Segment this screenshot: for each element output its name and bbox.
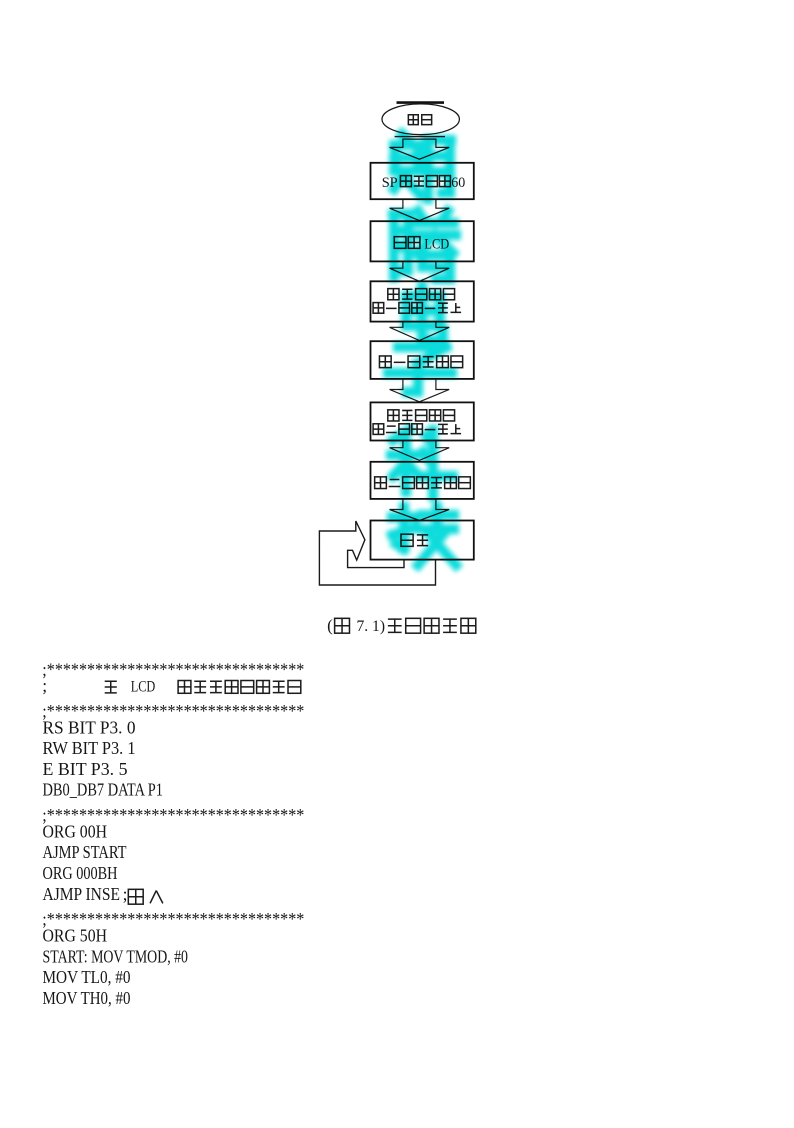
svg-text:START: MOV TMOD, #0: START: MOV TMOD, #0: [43, 946, 189, 966]
svg-text:LCD: LCD: [131, 679, 156, 696]
svg-text:7. 1): 7. 1): [357, 618, 386, 635]
svg-text:;: ;: [42, 676, 47, 696]
svg-text:MOV TH0, #0: MOV TH0, #0: [43, 988, 131, 1008]
svg-text:AJMP START: AJMP START: [43, 842, 127, 862]
svg-text:ORG 000BH: ORG 000BH: [43, 863, 118, 883]
svg-text:;: ;: [123, 884, 128, 904]
svg-text:DB0_DB7 DATA P1: DB0_DB7 DATA P1: [43, 780, 164, 800]
svg-text:RS BIT P3. 0: RS BIT P3. 0: [43, 717, 136, 737]
svg-text:AJMP INSE: AJMP INSE: [43, 884, 121, 904]
svg-text:ORG 00H: ORG 00H: [43, 821, 108, 841]
svg-text:RW BIT P3. 1: RW BIT P3. 1: [43, 738, 136, 758]
svg-text:MOV TL0, #0: MOV TL0, #0: [43, 967, 131, 987]
svg-text:E BIT P3. 5: E BIT P3. 5: [43, 759, 128, 779]
svg-text:;*****************************: ;********************************: [42, 659, 304, 679]
svg-text:(: (: [327, 616, 333, 635]
svg-text:ORG 50H: ORG 50H: [43, 925, 108, 945]
